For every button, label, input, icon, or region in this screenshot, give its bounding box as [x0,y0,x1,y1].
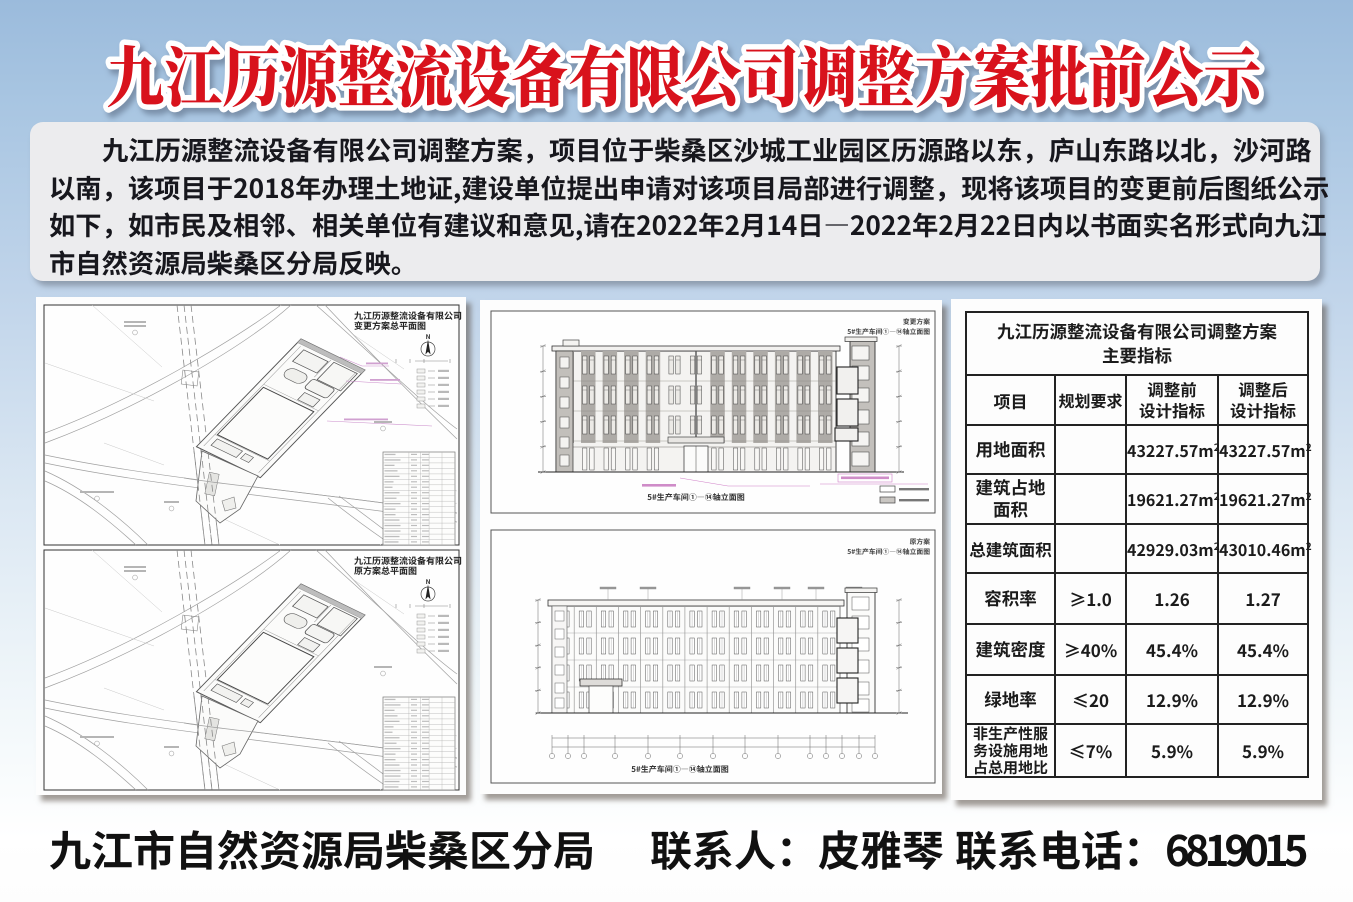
svg-text:变更方案总平面图: 变更方案总平面图 [354,319,426,332]
svg-text:5#生产车间①—⑭轴立面图: 5#生产车间①—⑭轴立面图 [647,492,744,503]
svg-text:5#生产车间①—⑭轴立面图: 5#生产车间①—⑭轴立面图 [631,764,728,775]
svg-text:原方案总平面图: 原方案总平面图 [354,564,417,577]
svg-text:N: N [426,576,431,586]
svg-text:N: N [426,331,431,341]
svg-text:原方案: 原方案 [910,536,931,546]
svg-text:5#生产车间①—⑭轴立面图: 5#生产车间①—⑭轴立面图 [847,326,930,336]
svg-text:5#生产车间①—⑭轴立面图: 5#生产车间①—⑭轴立面图 [847,546,930,556]
svg-text:九江历源整流设备有限公司调整方案批前公示: 九江历源整流设备有限公司调整方案批前公示 [107,25,1267,120]
svg-text:变更方案: 变更方案 [903,316,930,326]
